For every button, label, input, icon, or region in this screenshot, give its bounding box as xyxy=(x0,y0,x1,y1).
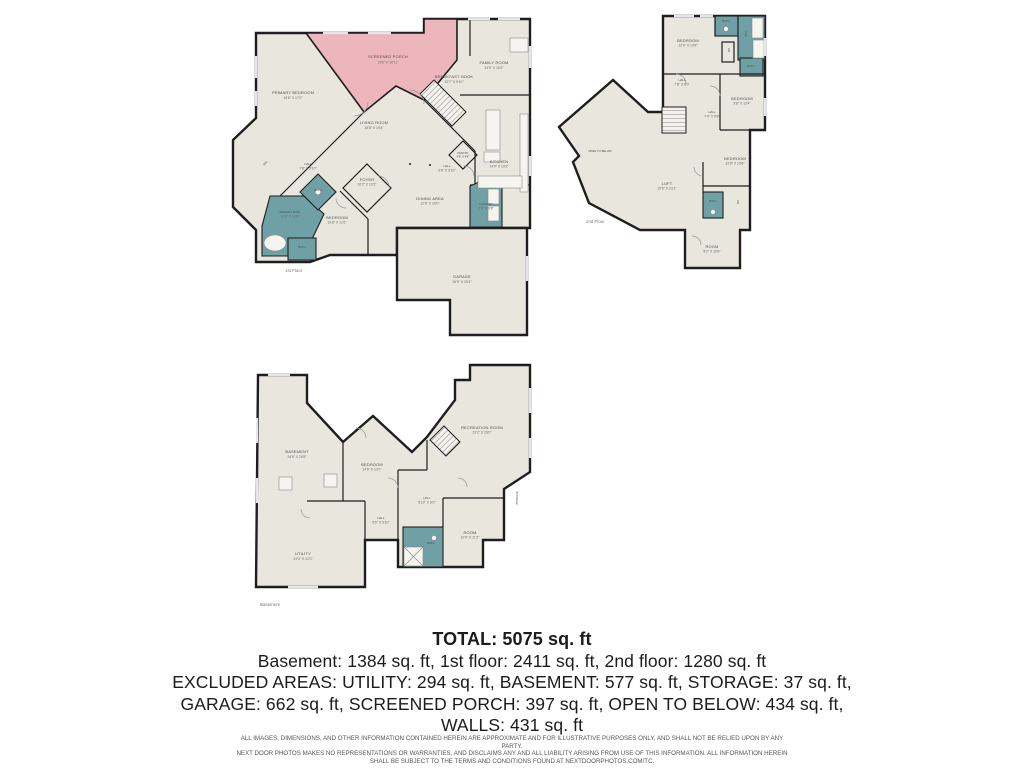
room-label: BEDROOM xyxy=(677,38,699,43)
room-label: BASEMENT xyxy=(285,449,309,454)
room-label: FAMILY ROOM xyxy=(479,60,508,65)
first-floor-plan: SCREENED PORCH 23'6" X 16'11" PRIMARY BE… xyxy=(228,6,536,346)
room-dims: 24'0" X 12'3" xyxy=(293,557,313,561)
room-label: FOYER xyxy=(360,177,375,182)
second-floor-stairs xyxy=(662,107,686,133)
room-label: BATH xyxy=(747,64,754,68)
room-dims: 26'5" X 25'1" xyxy=(452,280,472,284)
excluded-areas-text-2: GARAGE: 662 sq. ft, SCREENED PORCH: 397 … xyxy=(0,694,1024,716)
room-dims: 10'6" X 11'2" xyxy=(461,536,481,540)
room-label: OPEN TO BELOW xyxy=(588,149,612,153)
total-area-text: TOTAL: 5075 sq. ft xyxy=(0,629,1024,651)
room-label: PRIMARY BATH xyxy=(280,210,301,214)
room-dims: 5'10" X 8'0" xyxy=(418,501,436,505)
room-dims: 6'6" X 5'10" xyxy=(438,169,456,173)
room-label: DINING AREA xyxy=(416,196,444,201)
disclaimer-line: SHALL BE SUBJECT TO THE TERMS AND CONDIT… xyxy=(232,758,792,766)
room-dims: 7'8" X 8'0" xyxy=(674,83,690,87)
room-dims: 23'6" X 16'11" xyxy=(378,61,400,65)
floor-plan-sheet: SCREENED PORCH 23'6" X 16'11" PRIMARY BE… xyxy=(0,0,1024,768)
room-dims: 12'6" X 13'8" xyxy=(678,44,698,48)
room-label: GARAGE xyxy=(453,274,471,279)
room-label: BATH xyxy=(427,541,434,545)
room-label: LOFT xyxy=(662,181,673,186)
room-label: ROOM xyxy=(463,530,476,535)
room-dims: 7'6" X 9'8" xyxy=(478,207,494,211)
room-label: BEDROOM xyxy=(361,462,383,467)
walls-area-text: WALLS: 431 sq. ft xyxy=(0,715,1024,737)
room-label: HALL xyxy=(378,516,385,520)
room-label: BEDROOM xyxy=(731,96,753,101)
room-dims: 12'6" X 16'0" xyxy=(420,202,440,206)
room-label: HALL xyxy=(709,110,716,114)
room-dims: 10'2" X 10'2" xyxy=(357,183,377,187)
disclaimer-text: ALL IMAGES, DIMENSIONS, AND OTHER INFORM… xyxy=(232,735,792,765)
room-label: RECREATION ROOM xyxy=(461,425,503,430)
room-dims: 10'7" X 9'10" xyxy=(444,80,464,84)
room-label: LIN xyxy=(736,200,740,204)
room-dims: 12'8" X 13'6" xyxy=(725,162,745,166)
room-label: LAUNDRY xyxy=(479,202,492,206)
room-dims: 6'6" X 5'10" xyxy=(372,521,390,525)
room-dims: 14'0" X 19'2" xyxy=(489,165,509,169)
room-label: SCREENED PORCH xyxy=(368,54,408,59)
room-dims: 8'2" X 10'6" xyxy=(703,250,721,254)
room-label: PRIMARY BEDROOM xyxy=(272,90,314,95)
room-label: UTILITY xyxy=(295,551,311,556)
disclaimer-line: ALL IMAGES, DIMENSIONS, AND OTHER INFORM… xyxy=(232,735,792,750)
area-summary: TOTAL: 5075 sq. ft Basement: 1384 sq. ft… xyxy=(0,629,1024,737)
room-label: BEDROOM xyxy=(326,215,348,220)
room-label: LIN xyxy=(727,48,731,52)
room-label: LIVING ROOM xyxy=(360,120,388,125)
room-label: HALL xyxy=(305,162,312,166)
room-dims: 7'8" X 5'10" xyxy=(299,167,317,171)
room-label: WIC xyxy=(744,31,748,36)
room-label: BATH xyxy=(722,19,729,23)
room-label: BEDROOM xyxy=(724,156,746,161)
room-dims: 7'4" X 8'8" xyxy=(704,115,720,119)
floor-areas-text: Basement: 1384 sq. ft, 1st floor: 2411 s… xyxy=(0,651,1024,673)
excluded-areas-text-1: EXCLUDED AREAS: UTILITY: 294 sq. ft, BAS… xyxy=(0,672,1024,694)
basement-plan: BASEMENT 24'6" X 26'8" BEDROOM 14'6" X 1… xyxy=(248,358,540,614)
room-dims: 24'6" X 26'8" xyxy=(287,455,307,459)
floor-caption: Basement xyxy=(260,602,281,607)
room-label: STORAGE xyxy=(515,491,519,505)
room-dims: 4'8" X 4'8" xyxy=(457,155,470,159)
room-dims: 14'6" X 13'2" xyxy=(362,468,382,472)
room-label: HALL xyxy=(424,496,431,500)
room-dims: 19'6" X 23'1" xyxy=(657,187,677,191)
room-label: KITCHEN xyxy=(490,159,509,164)
room-label: BATH xyxy=(298,245,305,249)
room-dims: 10'8" X 12'6" xyxy=(327,221,347,225)
room-label: BATH xyxy=(709,199,716,203)
room-label: BATH xyxy=(314,188,321,192)
room-dims: 9'8" X 13'4" xyxy=(733,102,751,106)
room-label: HALL xyxy=(679,78,686,82)
floor-caption: 1st Floor xyxy=(285,268,303,273)
room-dims: 14'0" X 15'2" xyxy=(484,66,504,70)
floor-caption: 2nd Floor xyxy=(586,219,605,224)
room-label: BREAKFAST NOOK xyxy=(435,74,474,79)
room-dims: 23'2" X 26'0" xyxy=(472,431,492,435)
disclaimer-line: NEXT DOOR PHOTOS MAKES NO REPRESENTATION… xyxy=(232,750,792,758)
room-dims: 13'6" X 12'8" xyxy=(280,215,300,219)
room-dims: 15'8" X 17'0" xyxy=(283,96,303,100)
room-dims: 16'8" X 19'4" xyxy=(364,126,384,130)
room-label: ROOM xyxy=(705,244,718,249)
second-floor-plan: BEDROOM 12'6" X 13'8" BATH WIC LIN BATH … xyxy=(556,6,768,272)
room-label: HALL xyxy=(444,164,451,168)
